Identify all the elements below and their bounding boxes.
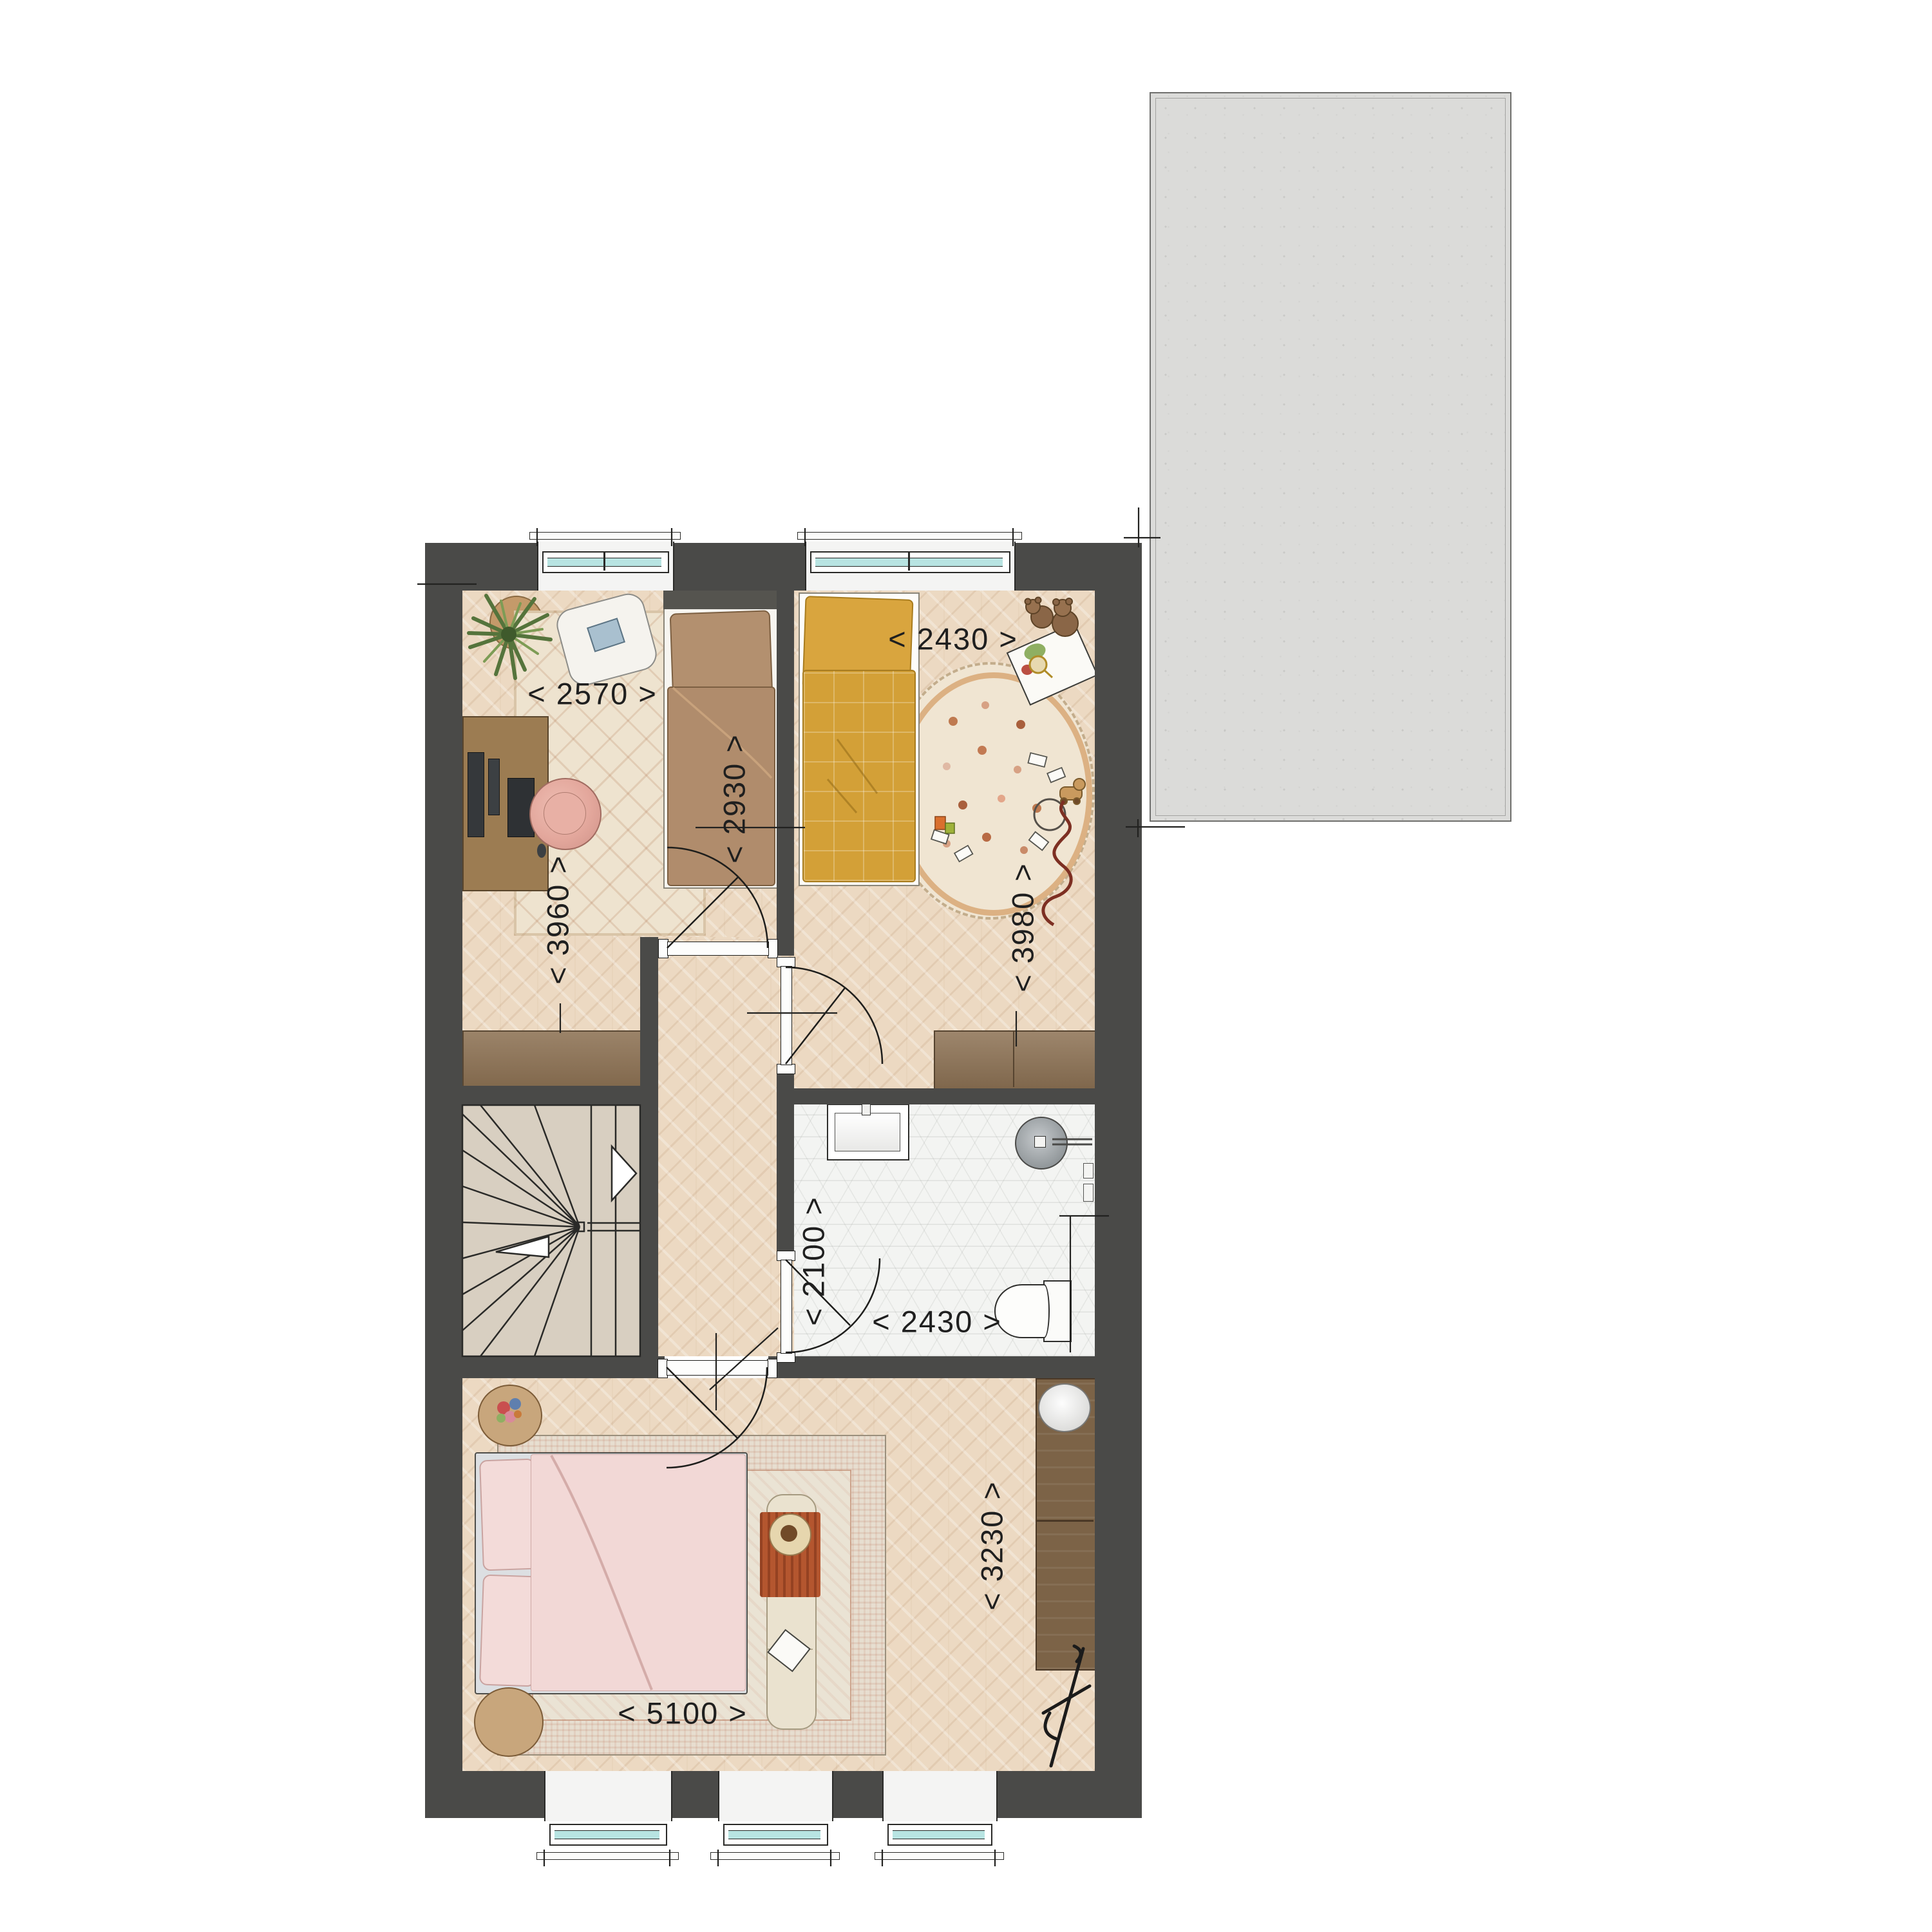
dim-bedroom1-depth: < 3960 > xyxy=(540,855,576,985)
teddy-bears-icon xyxy=(1025,598,1079,637)
valet-stand xyxy=(1043,1646,1090,1766)
magnifier-icon xyxy=(1030,656,1052,677)
floor-plan: < 2570 > < 2930 > < 2430 > < 3980 > < 39… xyxy=(0,0,1932,1932)
dim-bathroom-depth: < 2100 > xyxy=(796,1196,831,1326)
pull-toy-horse xyxy=(1060,779,1085,804)
dim-master-depth: < 3230 > xyxy=(974,1481,1010,1611)
toy-block-green xyxy=(945,823,954,833)
dim-bedroom1-width: < 2570 > xyxy=(527,676,658,712)
dim-bedroom1-bed-length: < 2930 > xyxy=(717,734,752,864)
dim-kidsroom-depth: < 3980 > xyxy=(1005,862,1041,992)
door-swings xyxy=(667,848,882,1468)
shower-arm xyxy=(1052,1139,1092,1144)
dim-bathroom-width: < 2430 > xyxy=(872,1304,1002,1340)
linework-overlay xyxy=(0,0,1932,1932)
dim-master-width: < 5100 > xyxy=(618,1696,748,1731)
kids-rug-dots xyxy=(943,701,1041,854)
toy-block-orange xyxy=(935,817,945,829)
flowers-icon xyxy=(497,1398,522,1423)
winder-staircase xyxy=(462,1105,640,1356)
plant-icon xyxy=(469,596,551,678)
toy-snake xyxy=(1043,801,1071,925)
dim-kidsroom-width: < 2430 > xyxy=(888,621,1018,657)
